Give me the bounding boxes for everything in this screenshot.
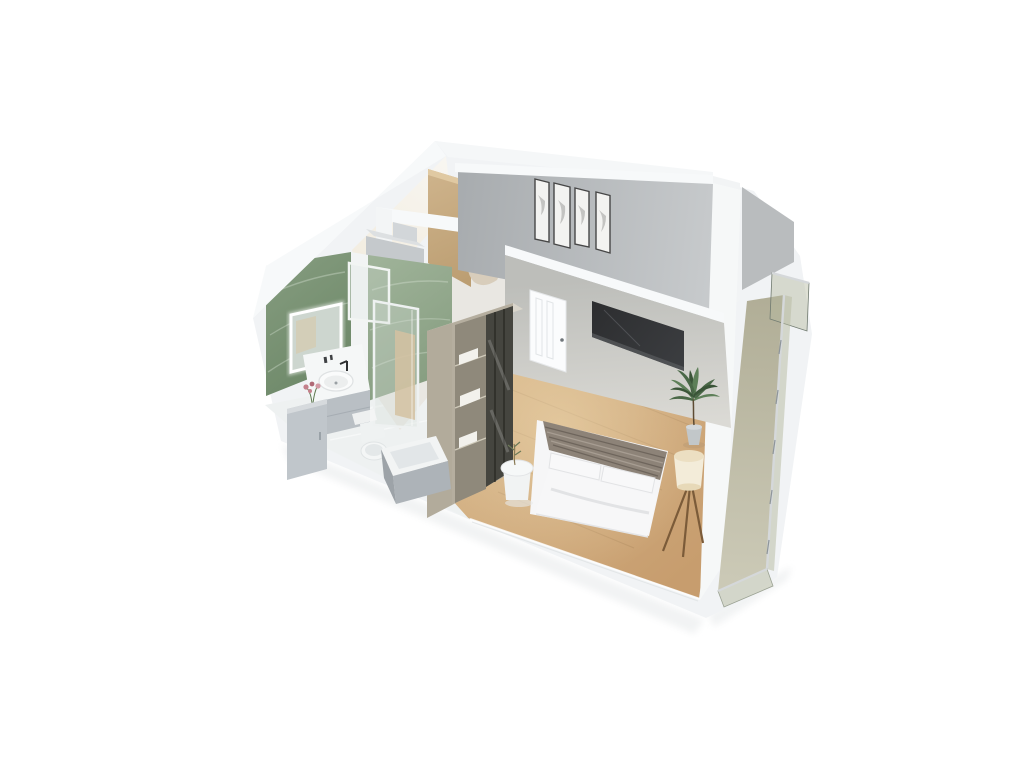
wardrobe-glass-doors	[486, 306, 513, 487]
art-frame-4	[596, 192, 610, 253]
floor-plan-render	[0, 0, 1024, 768]
interior-door	[530, 290, 566, 372]
art-frame-2	[554, 183, 570, 248]
toilet-seat	[365, 444, 383, 456]
art-frame-1	[535, 179, 549, 242]
plant-pot-rim	[686, 424, 702, 430]
art-frame-3	[575, 188, 589, 247]
wardrobe-open-shelves	[455, 315, 486, 503]
side-table-top	[501, 460, 533, 476]
sink-drain	[335, 382, 338, 385]
lamp-shade-top	[674, 450, 704, 462]
lamp-shade-glow	[677, 483, 701, 490]
side-table-shadow	[505, 499, 533, 507]
floor-plan-stage	[0, 0, 1024, 768]
door-handle	[560, 338, 564, 342]
plant-trunk	[693, 398, 694, 425]
glass-shower-door	[374, 301, 418, 428]
